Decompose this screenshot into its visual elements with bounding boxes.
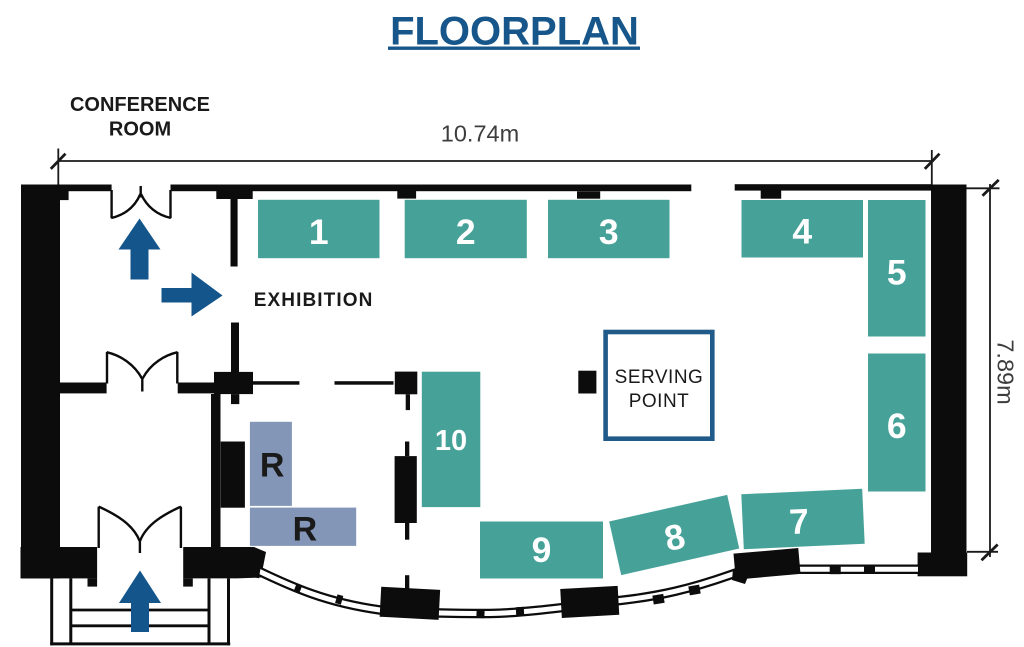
svg-text:4: 4	[792, 212, 812, 252]
svg-text:ROOM: ROOM	[109, 118, 171, 140]
svg-text:10.74m: 10.74m	[441, 121, 519, 147]
svg-text:3: 3	[599, 212, 619, 252]
svg-text:CONFERENCE: CONFERENCE	[70, 94, 210, 116]
svg-text:1: 1	[309, 212, 329, 252]
svg-text:R: R	[293, 511, 318, 549]
svg-text:10: 10	[435, 425, 467, 457]
svg-text:2: 2	[456, 212, 476, 252]
svg-text:SERVING: SERVING	[615, 367, 704, 388]
svg-text:7: 7	[788, 501, 810, 542]
svg-text:5: 5	[887, 253, 907, 293]
svg-text:6: 6	[887, 406, 907, 446]
svg-text:POINT: POINT	[629, 391, 690, 412]
svg-text:R: R	[260, 446, 285, 484]
svg-text:9: 9	[532, 530, 552, 570]
svg-text:EXHIBITION: EXHIBITION	[254, 290, 374, 311]
svg-text:7.89m: 7.89m	[993, 339, 1019, 404]
